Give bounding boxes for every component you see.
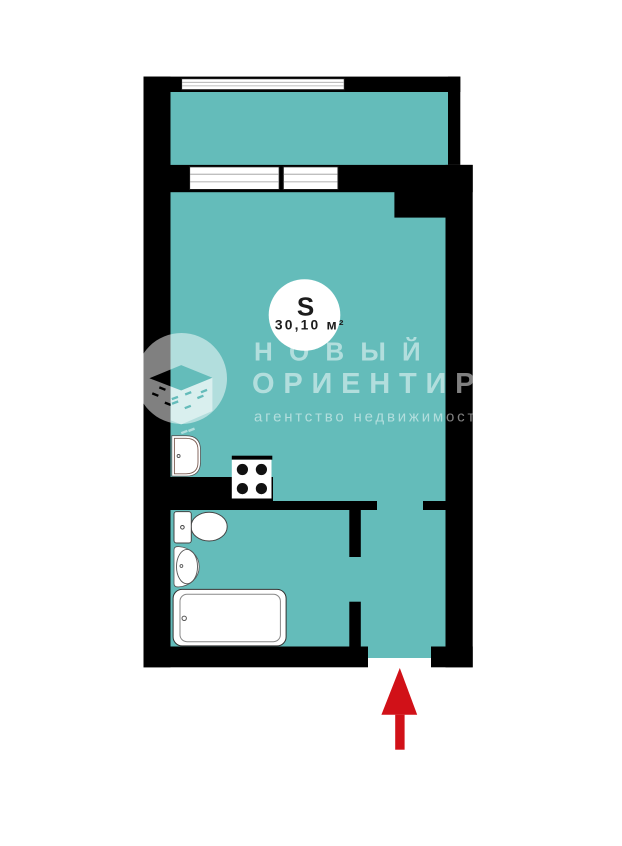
svg-text:агентство недвижимости: агентство недвижимости xyxy=(254,409,488,426)
svg-text:ОРИЕНТИР: ОРИЕНТИР xyxy=(252,368,483,400)
svg-text:30,10 м²: 30,10 м² xyxy=(275,317,346,332)
